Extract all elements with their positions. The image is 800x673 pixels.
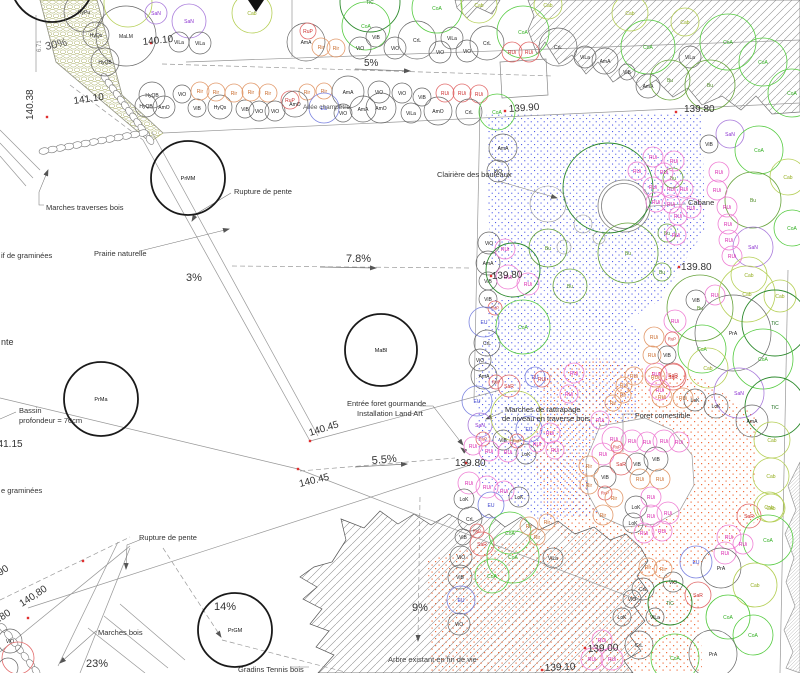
plant-label: ViO (457, 555, 465, 561)
plant-label: Rir (231, 91, 238, 97)
plant-label: RUi (649, 155, 657, 161)
plant-label: ViB (692, 298, 700, 304)
plant-label: Rir (611, 496, 618, 502)
plant-label: Cab (744, 273, 753, 279)
plant-label: Cab (247, 11, 256, 17)
plant-label: ViLa (548, 556, 558, 562)
plant-label: AmA (479, 374, 491, 380)
plant-label: RUi (501, 247, 509, 253)
plant-label: RUi (565, 392, 573, 398)
plant-label: HyPu (78, 10, 90, 16)
plant-label: Cab (543, 3, 552, 9)
plant-label: RUi (647, 514, 655, 520)
plant-label: RUi (483, 485, 491, 491)
plant-label: Rir (586, 464, 593, 470)
plant-label: CoA (758, 357, 768, 363)
plant-label: RUi (660, 439, 668, 445)
plant-label: RUi (458, 91, 466, 97)
plant-label: Cab (750, 583, 759, 589)
plant-label: SaR (668, 375, 678, 381)
plant-label: RUi (630, 374, 638, 380)
plant-label: RUi (649, 185, 657, 191)
annotation-text: 9% (412, 602, 428, 614)
plant-label: SaN (184, 19, 194, 25)
plan-line (0, 143, 33, 178)
plant-label: RuP (668, 336, 676, 341)
plant-label: ViB (193, 106, 201, 112)
annotation-text: 5.5% (371, 453, 397, 467)
plant-label: ViLa (195, 41, 205, 47)
plant-label: SaR (693, 593, 703, 599)
plant-label: CoA (518, 30, 528, 36)
plant-label: RUi (723, 205, 731, 211)
dashed-slope-line (0, 537, 130, 600)
plan-line (474, 108, 480, 400)
plant-label: SaN (748, 245, 758, 251)
plant-label: RUi (725, 535, 733, 541)
plant-label: RUi (672, 233, 680, 239)
plant-label: Cab (783, 175, 792, 181)
plan-line (0, 398, 298, 469)
plant-label: HyQB (98, 60, 112, 66)
plant-label: MaLM (119, 34, 133, 40)
annotation-text: 140,80 (18, 583, 50, 609)
plant-label: CoA (748, 633, 758, 639)
annotation-text: 139.80 (492, 269, 524, 282)
plant-label: Rir (586, 483, 593, 489)
annotation-text: 139.80 (684, 104, 715, 115)
plant-label: ViB (601, 475, 609, 481)
survey-node (297, 468, 299, 470)
annotation-text: 139.00 (588, 642, 620, 655)
label-leader-line (126, 539, 142, 569)
plan-line (0, 156, 26, 186)
survey-node (27, 617, 29, 619)
plant-label: ViB (459, 535, 467, 541)
plant-label: RUi (739, 542, 747, 548)
plant-label: AmA (498, 146, 510, 152)
plant-label: RUi (469, 444, 477, 450)
annotation-text: 139.90 (508, 102, 540, 115)
plant-label: RUi (524, 282, 532, 288)
annotation-text: 140.38 (25, 89, 36, 120)
dashed-slope-line (162, 64, 553, 76)
plant-label: AmA (600, 59, 612, 65)
plant-label: CoA (787, 226, 797, 232)
plant-label: ViB (456, 575, 464, 581)
plant-label: LoK (460, 497, 470, 503)
plant-label: Rir (321, 89, 328, 95)
annotation-text: 7.8% (346, 253, 371, 265)
plant-label: EU (526, 427, 533, 433)
plant-label: ViO (356, 46, 364, 52)
plant-label: HyQs (214, 105, 227, 111)
plant-label: LoK (712, 404, 722, 410)
plant-label: SaR (744, 514, 754, 520)
label-leader-line (420, 406, 463, 445)
plant-label: CrL (413, 38, 421, 44)
plant-label: Rir (534, 535, 541, 541)
plant-label: TiC (666, 601, 674, 607)
plant-label: RUi (725, 238, 733, 244)
plant-label: HyQB (145, 93, 159, 99)
plant-label: RUi (504, 450, 512, 456)
area-polygon (500, 59, 548, 98)
annotation-text: 23% (86, 658, 108, 670)
plant-label: RUi (628, 439, 636, 445)
plant-label: Cab (703, 366, 712, 372)
annotation-text: e graminées (1, 486, 43, 495)
plant-label: RUi (599, 452, 607, 458)
plant-label: ViO (391, 46, 399, 52)
plant-label: RUi (724, 222, 732, 228)
plant-label: Rir (610, 401, 617, 407)
plant-label: Bu (707, 83, 713, 89)
plant-label: ViB (623, 70, 631, 76)
plant-label: AmA (301, 40, 313, 46)
plant-label: RUi (643, 440, 651, 446)
survey-node (82, 560, 84, 562)
plant-label: CrL (466, 517, 474, 523)
annotation-text: 139.80 (455, 458, 486, 469)
annotation-text: Clairière des bouleaux (437, 170, 512, 179)
annotation-text: Prairie naturelle (94, 249, 147, 258)
plant-label: AmO (375, 106, 387, 112)
survey-node (504, 110, 506, 112)
plant-label: SaN (151, 11, 161, 17)
plant-label: RUi (475, 92, 483, 98)
plant-label: SaN (725, 132, 735, 138)
plant-label: CoA (518, 325, 528, 331)
plant-label: AmA (358, 107, 370, 113)
plant-label: RUi (441, 91, 449, 97)
plant-label: RUi (713, 188, 721, 194)
plant-label: RUi (465, 481, 473, 487)
plant-label: ViB (663, 353, 671, 359)
plant-label: PrMM (181, 176, 196, 182)
plant-label: RUi (671, 319, 679, 325)
plant-label: RUi (674, 214, 682, 220)
plant-label: RUi (648, 353, 656, 359)
plant-label: ViO (455, 622, 463, 628)
area-polygon (528, 0, 800, 114)
plant-label: RuP (513, 438, 521, 443)
annotation-text: 14% (214, 601, 236, 613)
plant-label: Rir (304, 90, 311, 96)
plant-label: RuP (613, 444, 621, 449)
annotation-text: 139.10 (545, 661, 577, 673)
plant-label: ViO (485, 241, 493, 247)
plan-line (152, 132, 318, 436)
plant-label: SaR (616, 462, 626, 468)
plant-label: Bu (659, 270, 665, 276)
annotation-text: de niveau en traverse bois (502, 414, 590, 423)
plant-label: ViO (463, 49, 471, 55)
annotation-text: 3% (186, 272, 202, 284)
plant-label: RUi (667, 202, 675, 208)
plant-label: CoA (758, 60, 768, 66)
plant-label: ViLa (580, 55, 590, 61)
ground-pattern-areas (40, 0, 800, 673)
plant-label: SaN (475, 423, 485, 429)
plant-label: CrL (465, 110, 473, 116)
slope-arrow (320, 267, 376, 268)
plant-label: Cab (767, 438, 776, 444)
annotation-text: 139.80 (681, 262, 712, 273)
plant-label: ViB (372, 35, 380, 41)
survey-node (584, 647, 586, 649)
plant-label: RUi (664, 511, 672, 517)
plant-label: CoA (492, 110, 502, 116)
annotation-text: Bassin (19, 406, 42, 415)
annotation-text: 141.15 (0, 439, 23, 450)
plant-label: RUi (588, 657, 596, 663)
label-leader-line (140, 229, 229, 251)
plant-label: Cab (474, 3, 483, 9)
annotation-text: 141.10 (73, 92, 105, 107)
plant-label: Cab (625, 11, 634, 17)
plant-label: AmA (343, 90, 355, 96)
plant-label: LoK (522, 452, 532, 458)
plant-label: ViO (271, 109, 279, 115)
annotation-text: Allée champêtre (303, 104, 350, 111)
plant-label: PrMa (94, 397, 108, 403)
survey-node (678, 266, 680, 268)
plant-label: RUi (728, 254, 736, 260)
label-leader-line (39, 170, 48, 205)
plant-label: PrA (729, 331, 738, 337)
plant-label: RUi (647, 495, 655, 501)
plant-label: CoA (487, 574, 497, 580)
plant-label: RUi (715, 170, 723, 176)
plant-label: Rir (197, 89, 204, 95)
plant-label: Cab (680, 20, 689, 26)
plant-label: Rir (526, 524, 533, 530)
annotation-text: Marches de rattrapage (505, 405, 580, 414)
plant-label: RUi (656, 477, 664, 483)
plant-label: LoK (632, 505, 642, 511)
plant-label: RUi (538, 377, 546, 383)
annotation-text: 6.71 (37, 40, 43, 52)
plant-label: EU (474, 399, 481, 405)
plant-label: CrL (483, 341, 491, 347)
plant-label: RUi (670, 159, 678, 165)
plant-label: ViB (652, 457, 660, 463)
plant-label: RUi (551, 448, 559, 454)
plant-label: RUi (640, 531, 648, 537)
plant-label: EU (458, 598, 465, 604)
landscape-plan-svg: HyPuHyQsMaLMHyQBSaNSaNViLaViLaHyQBHyQBAm… (0, 0, 800, 673)
plant-label: RUi (660, 170, 668, 176)
plant-label: Rir (248, 90, 255, 96)
plant-label: Bu (567, 284, 573, 290)
annotation-text: 5% (364, 58, 379, 69)
plant-label: CrL (483, 41, 491, 47)
plant-label: PrA (709, 652, 718, 658)
plant-label: RUi (679, 396, 687, 402)
plant-label: ViLa (447, 36, 457, 42)
plant-label: Rir (265, 91, 272, 97)
plant-label: RUi (533, 442, 541, 448)
plant-label: Rir (544, 520, 551, 526)
plant-label: RUi (650, 335, 658, 341)
annotation-text: Installation Land Art (357, 409, 424, 418)
plant-label: RUi (680, 187, 688, 193)
plant-label: Rir (213, 90, 220, 96)
plant-label: AmA (483, 261, 495, 267)
plant-label: TiC (771, 321, 779, 327)
plant-label: CoA (697, 347, 707, 353)
plant-label: ViO (339, 111, 347, 117)
plant-label: RUi (721, 551, 729, 557)
plant-label: SaR (477, 542, 487, 548)
plant-label: PrA (717, 566, 726, 572)
plant-label: ViO (255, 109, 263, 115)
plant-label: Bu (667, 78, 673, 84)
plant-label: PrGM (228, 628, 243, 634)
label-leader-line (0, 412, 16, 419)
annotation-text: 140.45 (298, 472, 331, 490)
plant-label: ViO (178, 92, 186, 98)
plant-label: RUi (652, 200, 660, 206)
plant-label: Rir (660, 567, 667, 573)
plant-label: CoA (787, 91, 797, 97)
plant-label: ViB (418, 95, 426, 101)
annotation-text: nte (1, 337, 14, 347)
plant-label: CoA (508, 555, 518, 561)
plant-label: Bu (545, 246, 551, 252)
annotation-text: 140.10 (142, 34, 174, 48)
plant-label: RUi (636, 477, 644, 483)
annotation-text: Foret comestible (635, 411, 690, 420)
survey-node (541, 669, 543, 671)
plant-label: EU (693, 560, 700, 566)
plant-label: ViB (241, 107, 249, 113)
plant-label: Cab (766, 474, 775, 480)
plant-label: MaBl (375, 348, 388, 354)
plant-label: Cab (775, 294, 784, 300)
plant-label: RUi (546, 431, 554, 437)
plant-label: CrL (635, 643, 643, 649)
plant-label: AmO (158, 105, 170, 111)
annotation-text: profondeur = 70cm (19, 416, 82, 425)
survey-node (46, 116, 48, 118)
plant-label: EU (488, 503, 495, 509)
plant-label: ViO (628, 597, 636, 603)
plan-line (104, 616, 168, 668)
plant-label: ViLa (685, 55, 695, 61)
area-polygon (784, 462, 800, 673)
plant-label: Bu (625, 251, 631, 257)
plant-label: ViLa (406, 111, 416, 117)
annotation-text: 140.45 (308, 419, 341, 439)
annotation-text: Marches bois (98, 628, 143, 637)
plant-label: Cab (766, 506, 775, 512)
plant-label: LoK (691, 398, 701, 404)
plant-label: RUi (596, 418, 604, 424)
plant-label: RUi (675, 440, 683, 446)
plant-label: Rir (600, 513, 607, 519)
plant-label: Rir (333, 46, 340, 52)
plant-label: CoA (763, 538, 773, 544)
plant-label: ViB (705, 142, 713, 148)
plant-label: SaR (504, 384, 514, 390)
plant-label: CrL (639, 587, 647, 593)
plan-line (780, 270, 788, 673)
plant-label: RUi (651, 375, 659, 381)
annotation-text: Entrée foret gourmande (347, 399, 426, 408)
annotation-text: Gradins Tennis bois (238, 665, 304, 673)
survey-node (309, 440, 311, 442)
plant-label: RUi (485, 449, 493, 455)
plant-label: AmO (432, 109, 444, 115)
plant-label: Rir (318, 45, 325, 51)
plant-label: SaN (734, 391, 744, 397)
plant-label: LoK (515, 495, 525, 501)
plant-label: RUi (658, 395, 666, 401)
plant-label: TiC (771, 405, 779, 411)
annotation-text: Rupture de pente (139, 533, 197, 542)
plant-label: HyQB (139, 104, 153, 110)
plant-label: AmA (747, 419, 759, 425)
plant-label: ViB (633, 462, 641, 468)
plant-label: Rir (620, 393, 627, 399)
plant-label: Rir (645, 565, 652, 571)
annotation-text: if de graminées (1, 251, 53, 260)
plant-label: CoA (723, 615, 733, 621)
plant-label: LoK (618, 615, 628, 621)
annotation-text: Rupture de pente (234, 187, 292, 196)
annotation-text: Cabane (688, 198, 714, 207)
plant-label: ViO (398, 91, 406, 97)
plant-label: RUi (500, 489, 508, 495)
plant-label: ViLa (174, 40, 184, 46)
plant-label: RUi (570, 371, 578, 377)
annotation-text: Marches traverses bois (46, 203, 124, 212)
plant-label: RUi (667, 187, 675, 193)
survey-node (675, 111, 677, 113)
plan-line (58, 542, 118, 666)
plant-label: RUi (608, 657, 616, 663)
plant-label: RUi (633, 169, 641, 175)
plant-label: RUi (508, 50, 516, 56)
plant-label: CoA (432, 6, 442, 12)
plant-label: CrL (554, 45, 562, 51)
plant-label: ViLa (650, 615, 660, 621)
cabane-circle-outer (598, 180, 650, 232)
plant-label: RuP (303, 29, 313, 35)
plant-label: ViO (436, 50, 444, 56)
plant-label: CoA (643, 45, 653, 51)
plant-label: AmO (289, 102, 301, 108)
plant-label: EU (481, 320, 488, 326)
plant-label: RUi (525, 50, 533, 56)
plant-label: CoA (670, 656, 680, 662)
plant-label: Bu (750, 198, 756, 204)
plant-label: CoA (723, 40, 733, 46)
plant-label: RUi (658, 529, 666, 535)
plan-line (143, 140, 310, 441)
plant-label: Bu (664, 231, 670, 237)
landscape-plan-canvas: HyPuHyQsMaLMHyQBSaNSaNViLaViLaHyQBHyQBAm… (0, 0, 800, 673)
annotation-text: Arbre existant en fin de vie (388, 655, 477, 664)
annotation-text: 90 (0, 563, 11, 579)
plant-label: CoA (754, 148, 764, 154)
